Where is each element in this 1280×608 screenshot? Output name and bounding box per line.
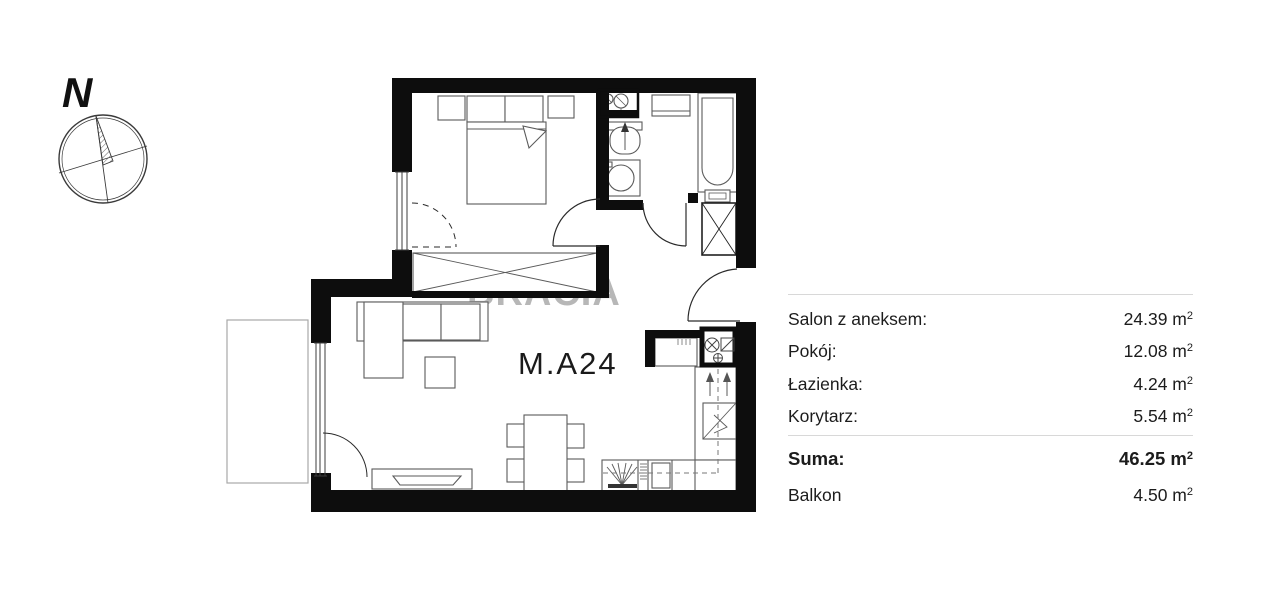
compass-icon — [59, 115, 147, 203]
area-row: Salon z aneksem: 24.39 m2 — [788, 303, 1193, 336]
area-label: Pokój: — [788, 341, 837, 362]
wardrobe — [413, 253, 597, 292]
chair — [566, 459, 584, 482]
area-row: Łazienka: 4.24 m2 — [788, 368, 1193, 401]
entrance-door — [688, 269, 740, 321]
area-row: Suma: 46.25 m2 — [788, 440, 1193, 477]
bedroom-window-swing — [412, 203, 456, 247]
washbasin — [705, 190, 730, 202]
area-value: 24.39 m2 — [1124, 309, 1193, 330]
area-value: 12.08 m2 — [1124, 341, 1193, 362]
chair — [507, 424, 525, 447]
bathtub — [698, 93, 737, 192]
sofa — [357, 302, 488, 378]
balcony-door-swing — [323, 433, 367, 477]
area-row: Korytarz: 5.54 m2 — [788, 401, 1193, 434]
area-label: Suma: — [788, 448, 845, 470]
area-value: 4.50 m2 — [1133, 485, 1193, 506]
bathroom-door — [643, 203, 686, 246]
coffee-table — [425, 357, 455, 388]
dining-table — [507, 415, 584, 492]
area-table: Salon z aneksem: 24.39 m2 Pokój: 12.08 m… — [788, 294, 1193, 514]
bedroom-door — [553, 199, 600, 246]
area-value: 46.25 m2 — [1119, 448, 1193, 470]
area-main-rows: Salon z aneksem: 24.39 m2 Pokój: 12.08 m… — [788, 295, 1193, 435]
upper-cabinet — [655, 338, 697, 366]
bed — [467, 96, 546, 204]
bathroom-shelf — [652, 95, 690, 116]
chair — [507, 459, 525, 482]
unit-label: M.A24 — [518, 346, 618, 381]
area-summary-rows: Suma: 46.25 m2 Balkon 4.50 m2 — [788, 436, 1193, 514]
area-row: Balkon 4.50 m2 — [788, 477, 1193, 514]
toilet — [608, 122, 642, 154]
balcony — [227, 320, 308, 483]
chair — [566, 424, 584, 448]
tv-cabinet — [372, 469, 472, 489]
bedroom-window — [395, 172, 409, 250]
oven — [652, 463, 670, 488]
area-label: Balkon — [788, 485, 842, 506]
area-label: Łazienka: — [788, 374, 863, 395]
area-row: Pokój: 12.08 m2 — [788, 336, 1193, 369]
kitchen-utility-box — [702, 329, 735, 365]
area-value: 5.54 m2 — [1133, 406, 1193, 427]
vent-shaft — [702, 203, 736, 255]
area-label: Salon z aneksem: — [788, 309, 927, 330]
balcony-window — [314, 343, 327, 476]
north-label: N — [62, 69, 94, 116]
area-label: Korytarz: — [788, 406, 858, 427]
area-value: 4.24 m2 — [1133, 374, 1193, 395]
